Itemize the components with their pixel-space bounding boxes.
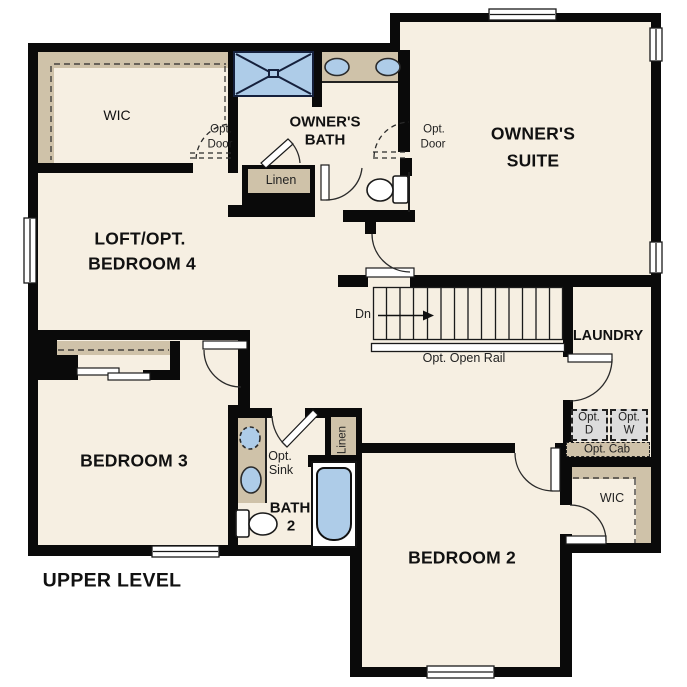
toilet-icons — [236, 176, 408, 537]
opt-door-wic-label-1: Opt. — [210, 124, 232, 136]
stairs-down-label: Dn — [355, 308, 371, 321]
wic-bedroom2-door — [566, 536, 606, 544]
bedroom2-door — [551, 448, 560, 491]
opt-cabinet-label: Opt. Cab — [584, 444, 630, 456]
shower-glass-icon — [236, 54, 311, 94]
opt-dryer-label-1: Opt. — [578, 412, 600, 424]
room-label-bath2-2: 2 — [287, 519, 295, 534]
window — [152, 546, 219, 557]
opt-sink-label-1: Opt. — [268, 450, 292, 463]
opt-sink-label-2: Sink — [269, 464, 293, 477]
opt-open-rail-label: Opt. Open Rail — [423, 352, 506, 365]
linen-bath2-label: Linen — [337, 426, 349, 454]
opt-door-suite-label-2: Door — [421, 139, 446, 151]
owners-bath-door — [321, 165, 329, 200]
room-label-owners-suite-1: OWNER'S — [491, 125, 575, 143]
linen-hall-label: Linen — [266, 174, 297, 187]
room-label-wic-owners: WIC — [103, 108, 130, 122]
plan-title: UPPER LEVEL — [43, 571, 182, 591]
room-label-owners-suite-2: SUITE — [507, 152, 560, 170]
linen-hall-door — [261, 139, 293, 168]
room-label-owners-bath-1: OWNER'S — [289, 115, 360, 130]
opt-washer-label-2: W — [624, 425, 635, 437]
stairs — [372, 288, 565, 352]
opt-washer-label-1: Opt. — [618, 412, 640, 424]
opt-dryer-label-2: D — [585, 425, 593, 437]
floor-plan: WIC Opt. Door OWNER'S BATH Opt. Door OWN… — [0, 0, 687, 687]
room-label-bedroom2: BEDROOM 2 — [408, 549, 516, 567]
room-label-laundry: LAUNDRY — [573, 329, 643, 344]
room-label-bath2-1: BATH — [270, 501, 311, 516]
window — [24, 218, 36, 283]
window — [489, 9, 556, 20]
room-label-bedroom3: BEDROOM 3 — [80, 452, 188, 470]
window — [650, 28, 662, 61]
room-label-wic-bedroom2: WIC — [600, 492, 624, 505]
sliding-closet-doors — [77, 368, 150, 380]
room-label-loft-1: LOFT/OPT. — [94, 230, 185, 248]
room-label-owners-bath-2: BATH — [305, 133, 346, 148]
window — [650, 242, 662, 273]
opt-door-suite-label-1: Opt. — [423, 124, 445, 136]
bedroom3-door — [203, 341, 247, 349]
laundry-door — [568, 354, 612, 362]
bath2-door — [282, 410, 318, 447]
window — [427, 666, 494, 678]
room-label-loft-2: BEDROOM 4 — [88, 255, 196, 273]
opt-door-wic-label-2: Door — [208, 139, 233, 151]
